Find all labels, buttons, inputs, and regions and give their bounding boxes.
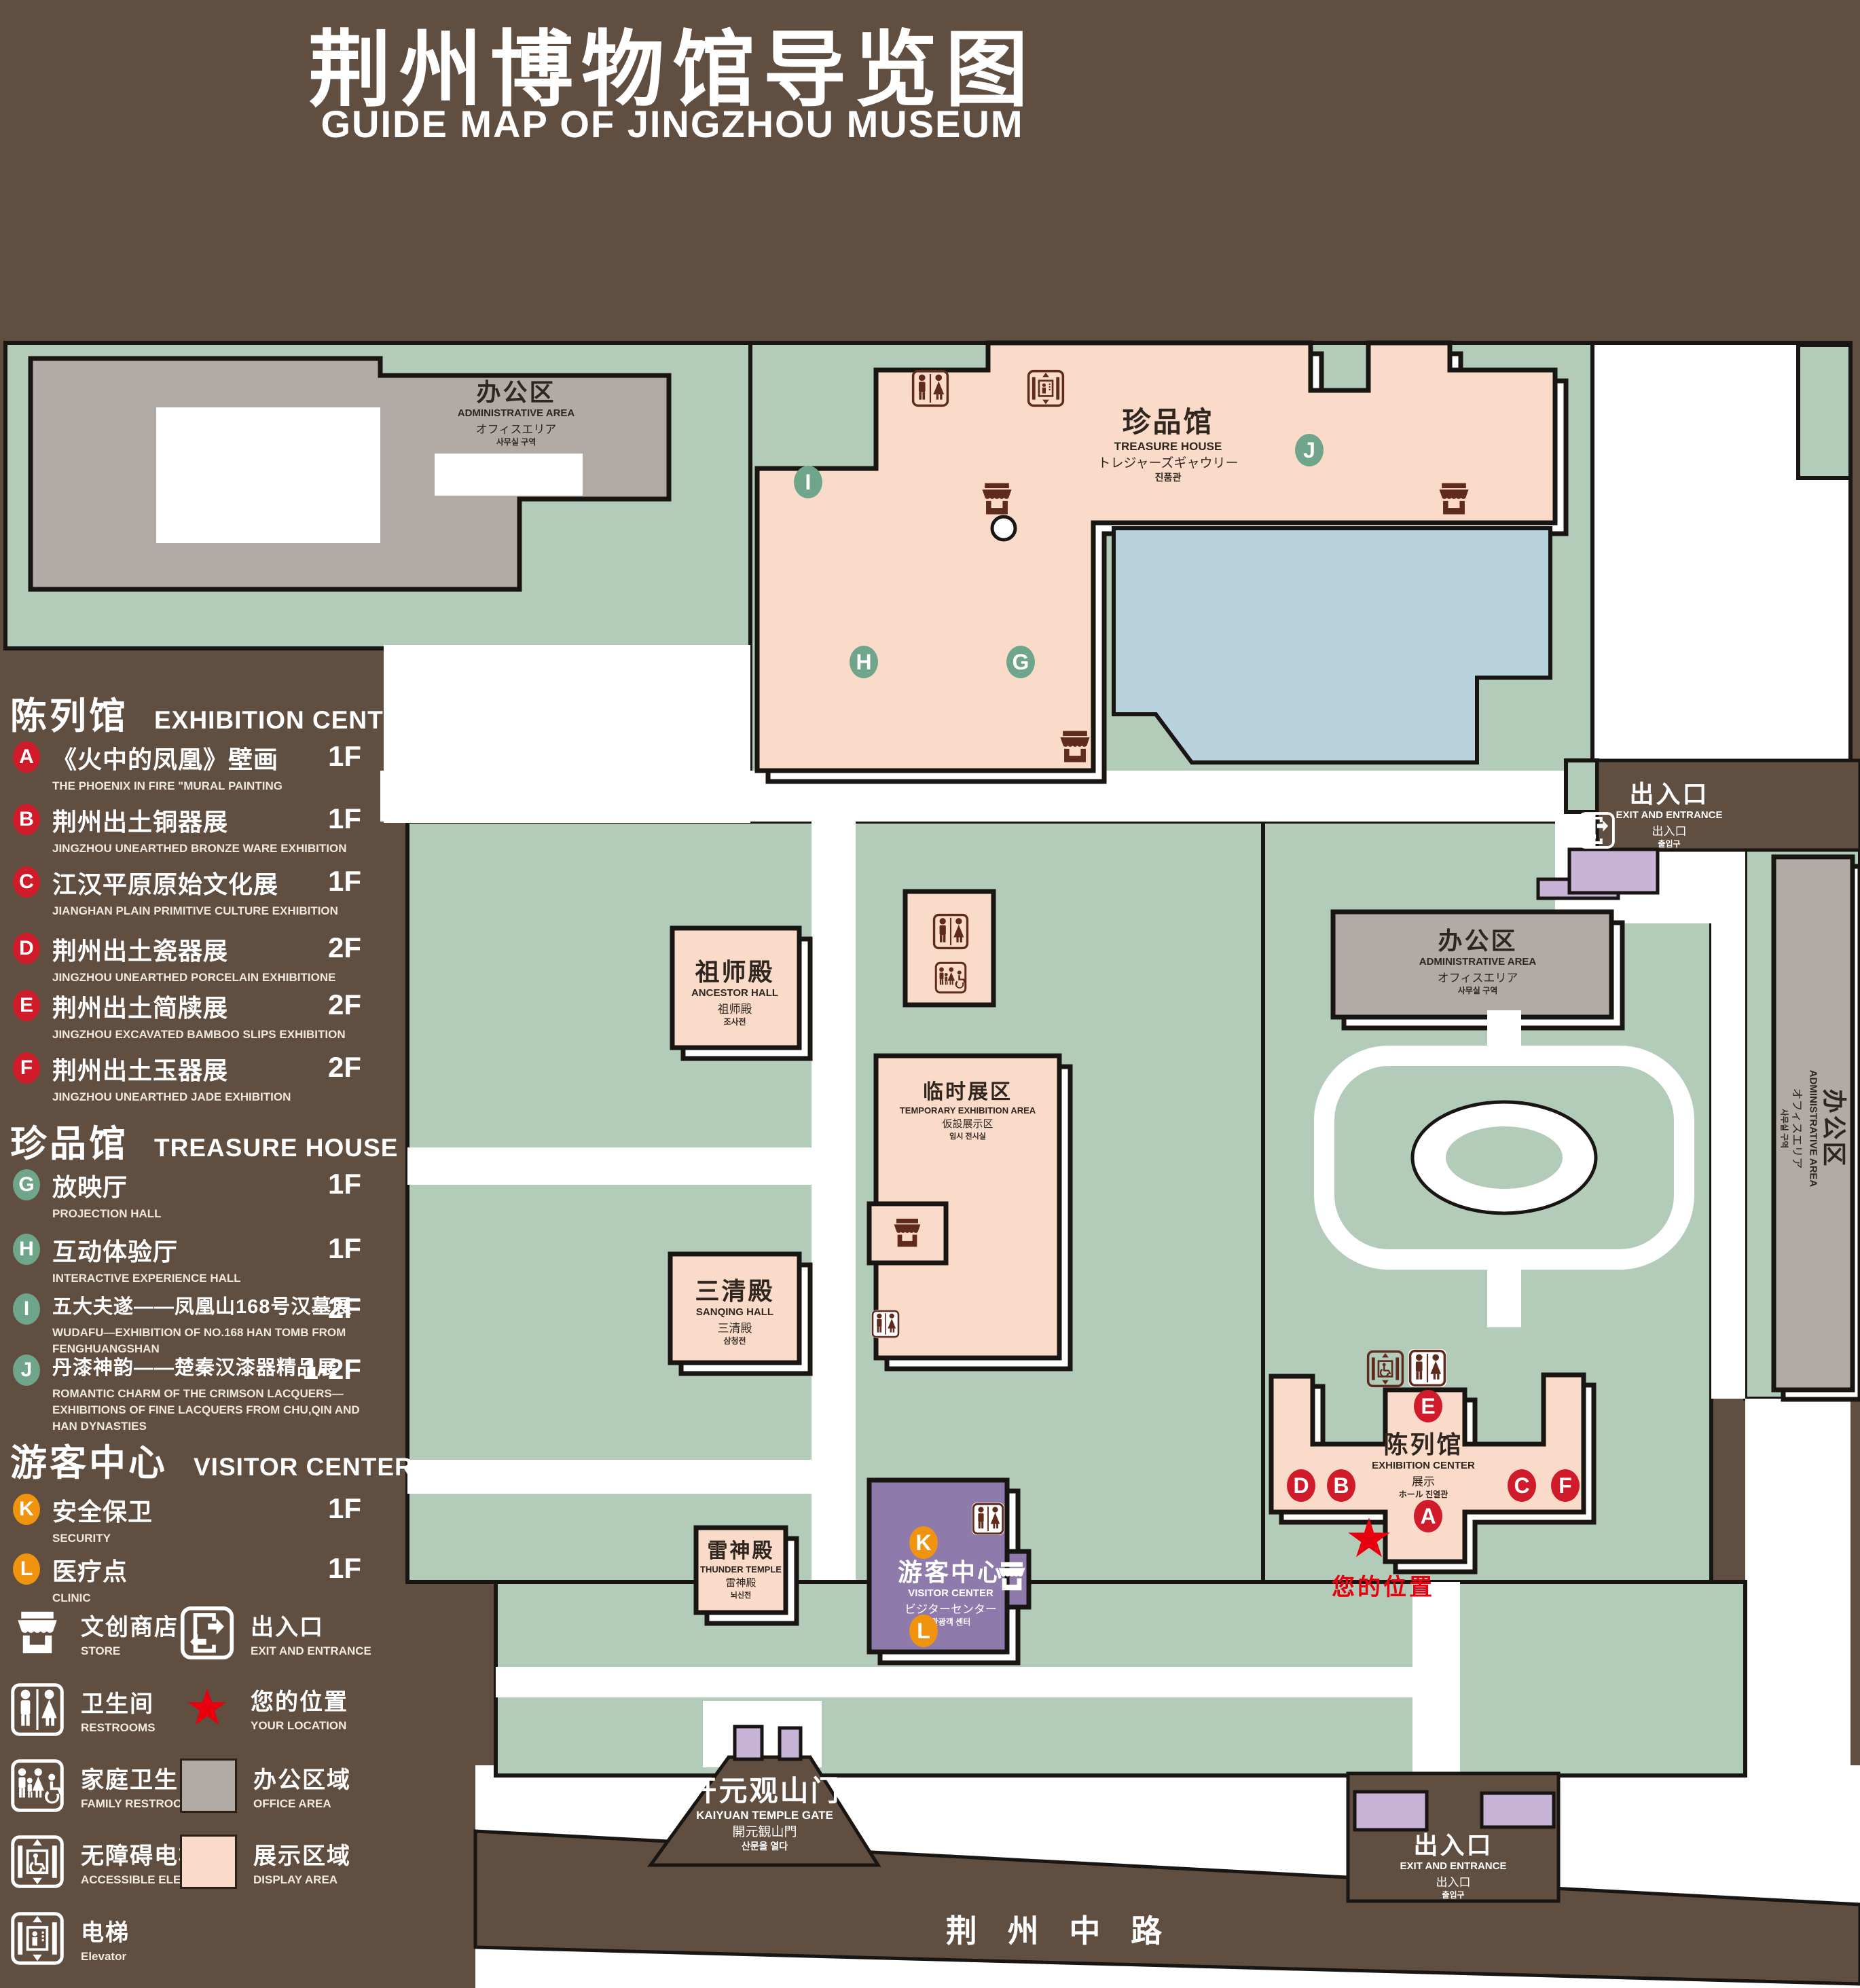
legend-item-G: G 放映厅 1F PROJECTION HALL — [10, 1168, 380, 1222]
south-exit-label: 出入口 EXIT AND ENTRANCE 出入口 출입구 — [1400, 1832, 1507, 1900]
accessible-elevator-icon — [10, 1835, 65, 1889]
restroom-icon — [871, 1310, 900, 1338]
family-restroom-icon — [10, 1759, 65, 1813]
map-marker-H: H — [850, 646, 878, 678]
badge-H: H — [13, 1234, 40, 1265]
badge-C: C — [13, 866, 40, 898]
map-marker-D: D — [1287, 1469, 1315, 1502]
accessible-elevator-icon — [1366, 1350, 1404, 1388]
legend-section-exhibition-center: 陈列馆 EXHIBITION CENTER — [10, 686, 420, 739]
badge-J: J — [13, 1355, 40, 1386]
guide-map-board: 荆州博物馆导览图 GUIDE MAP OF JINGZHOU MUSEUM — [0, 0, 1860, 1988]
map-marker-G: G — [1006, 646, 1035, 678]
store-icon — [889, 1215, 926, 1251]
northeast-exit-gatehouse — [1569, 849, 1658, 893]
store-icon — [993, 1558, 1030, 1595]
badge-B: B — [13, 804, 40, 835]
legend-panel: 陈列馆 EXHIBITION CENTER A 《火中的凤凰》壁画 1F THE… — [10, 686, 380, 1976]
legend-item-I: I 五大夫遂——凤凰山168号汉墓展 2F WUDAFU—EXHIBITION … — [10, 1292, 380, 1357]
legend-item-J: J 丹漆神韵——楚秦汉漆器精品展 1-2F ROMANTIC CHARM OF … — [10, 1353, 380, 1435]
legend-item-H: H 互动体验厅 1F INTERACTIVE EXPERIENCE HALL — [10, 1232, 380, 1287]
legend-item-A: A 《火中的凤凰》壁画 1F THE PHOENIX IN FIRE "MURA… — [10, 740, 380, 794]
badge-A: A — [13, 741, 40, 773]
legend-section-visitor-center: 游客中心 VISITOR CENTER — [10, 1433, 414, 1486]
legend-item-E: E 荆州出土简牍展 2F JINGZHOU EXCAVATED BAMBOO S… — [10, 989, 380, 1043]
elevator-icon — [10, 1911, 65, 1966]
admin-nw-label: 办公区 ADMINISTRATIVE AREA オフィスエリア 사무실 구역 — [458, 379, 575, 447]
legend-symbol-exit: 出入口 EXIT AND ENTRANCE — [180, 1606, 371, 1660]
location-star-icon — [180, 1682, 234, 1733]
restroom-icon — [972, 1503, 1004, 1535]
restroom-icon — [1408, 1349, 1446, 1387]
road-name: 荆 州 中 路 — [946, 1907, 1173, 1951]
your-location-label: 您的位置 — [1332, 1568, 1435, 1602]
legend-symbol-family-restrooms: 家庭卫生间 FAMILY RESTROOMS — [10, 1759, 203, 1813]
kaiyuan-gate-label: 开元观山门 KAIYUAN TEMPLE GATE 開元観山門 산문을 열다 — [688, 1775, 841, 1852]
northeast-exit-label: 出入口 EXIT AND ENTRANCE 出入口 출입구 — [1616, 781, 1723, 849]
south-exit-gatehouse — [1482, 1793, 1554, 1827]
exhibition-center-label: 陈列馆 EXHIBITION CENTER 展示 ホール 진열관 — [1372, 1431, 1475, 1500]
map-marker-L: L — [909, 1615, 938, 1647]
restroom-icon — [10, 1682, 65, 1737]
exit-icon — [1578, 812, 1616, 849]
temporary-exhibition-label: 临时展区 TEMPORARY EXHIBITION AREA 仮設展示区 임시 … — [900, 1081, 1036, 1141]
map-marker-E: E — [1414, 1390, 1442, 1422]
store-icon — [977, 479, 1017, 519]
badge-I: I — [13, 1293, 40, 1325]
legend-item-F: F 荆州出土玉器展 2F JINGZHOU UNEARTHED JADE EXH… — [10, 1051, 380, 1105]
map-marker-J: J — [1295, 434, 1324, 466]
admin-se-label: 办公区 ADMINISTRATIVE AREA オフィスエリア 사무실 구역 — [1779, 1070, 1848, 1188]
display-area-swatch — [180, 1835, 237, 1889]
treasure-house-label: 珍品馆 TREASURE HOUSE トレジャーズギャウリー 진품관 — [1097, 406, 1238, 483]
badge-D: D — [13, 933, 40, 964]
map-marker-I: I — [794, 466, 822, 498]
store-icon — [1055, 726, 1095, 767]
store-icon — [10, 1606, 65, 1660]
visitor-center-label: 游客中心 VISITOR CENTER ビジターセンター 관광객 센터 — [898, 1559, 1004, 1627]
legend-section-treasure-house: 珍品馆 TREASURE HOUSE — [10, 1113, 398, 1167]
badge-G: G — [13, 1169, 40, 1200]
badge-K: K — [13, 1494, 40, 1525]
map-marker-K: K — [909, 1526, 938, 1559]
map-marker-B: B — [1327, 1469, 1355, 1502]
map-marker-A: A — [1414, 1500, 1442, 1532]
badge-L: L — [13, 1553, 40, 1585]
map-marker-C: C — [1508, 1469, 1536, 1502]
legend-item-L: L 医疗点 1F CLINIC — [10, 1552, 380, 1606]
legend-item-C: C 江汉平原原始文化展 1F JIANGHAN PLAIN PRIMITIVE … — [10, 865, 380, 919]
lawn-northeast-patch — [1798, 345, 1850, 478]
legend-item-B: B 荆州出土铜器展 1F JINGZHOU UNEARTHED BRONZE W… — [10, 803, 380, 857]
restroom-icon — [932, 913, 969, 950]
location-star-icon — [1345, 1511, 1393, 1566]
gate-pillar — [735, 1727, 762, 1759]
store-icon — [1434, 479, 1474, 519]
family-restroom-icon — [934, 961, 967, 994]
restroom-icon — [911, 369, 949, 407]
sanqing-hall-label: 三清殿 SANQING HALL 三清殿 삼청전 — [695, 1278, 774, 1346]
map-marker-F: F — [1551, 1469, 1580, 1502]
legend-symbol-restrooms: 卫生间 RESTROOMS — [10, 1682, 156, 1737]
legend-symbol-your-location: 您的位置 YOUR LOCATION — [180, 1682, 348, 1733]
badge-F: F — [13, 1052, 40, 1084]
path-vertical — [812, 822, 856, 1582]
legend-symbol-elevator: 电梯 Elevator — [10, 1911, 130, 1966]
garden-island — [1446, 1126, 1563, 1189]
office-area-swatch — [180, 1759, 237, 1813]
legend-item-D: D 荆州出土瓷器展 2F JINGZHOU UNEARTHED PORCELAI… — [10, 932, 380, 986]
legend-symbol-store: 文创商店 STORE — [10, 1606, 179, 1660]
ancestor-hall-label: 祖师殿 ANCESTOR HALL 祖师殿 조사전 — [691, 959, 778, 1027]
legend-item-K: K 安全保卫 1F SECURITY — [10, 1492, 380, 1547]
exit-icon — [180, 1606, 234, 1660]
thunder-temple-label: 雷神殿 THUNDER TEMPLE 雷神殿 뇌신전 — [700, 1540, 782, 1600]
legend-symbol-display-area: 展示区域 DISPLAY AREA — [180, 1835, 351, 1889]
south-exit-gatehouse — [1355, 1792, 1427, 1830]
elevator-icon — [1027, 369, 1065, 407]
admin-east-label: 办公区 ADMINISTRATIVE AREA オフィスエリア 사무실 구역 — [1419, 927, 1537, 996]
badge-E: E — [13, 990, 40, 1021]
legend-symbol-office-area: 办公区域 OFFICE AREA — [180, 1759, 351, 1813]
gate-pillar — [780, 1728, 801, 1759]
